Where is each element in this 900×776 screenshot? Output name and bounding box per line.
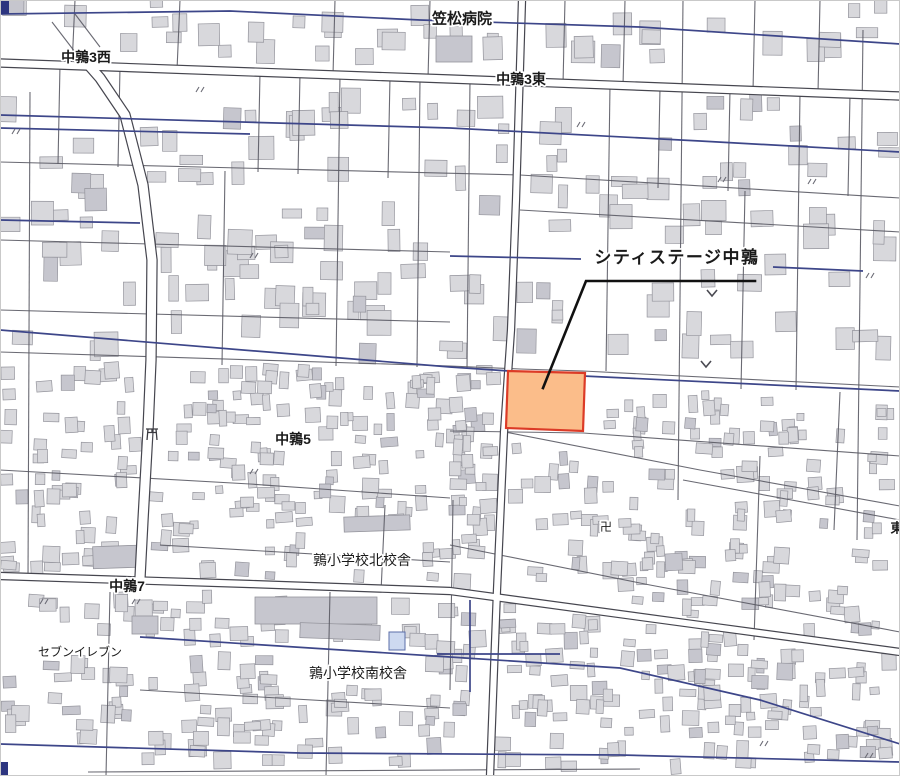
building	[80, 729, 97, 745]
building	[62, 449, 77, 458]
building	[365, 689, 382, 701]
building	[546, 648, 564, 663]
building	[479, 195, 500, 215]
building	[852, 330, 878, 342]
building	[84, 604, 99, 619]
building-large	[132, 616, 158, 634]
building	[279, 372, 289, 389]
building	[550, 624, 565, 635]
building	[820, 518, 829, 528]
building	[469, 275, 481, 294]
label-kasamatsu-hospital: 笠松病院	[431, 9, 492, 27]
building	[694, 113, 707, 130]
building	[689, 649, 703, 663]
building	[670, 759, 681, 775]
building	[657, 562, 665, 577]
building	[686, 312, 701, 336]
building	[829, 272, 850, 287]
building	[219, 369, 229, 383]
building	[353, 416, 368, 430]
building	[218, 652, 231, 670]
building	[625, 727, 634, 735]
building	[728, 664, 743, 677]
building	[608, 334, 628, 354]
building	[190, 745, 206, 757]
building	[428, 103, 438, 119]
building	[569, 461, 578, 473]
building	[526, 654, 542, 666]
building	[163, 131, 177, 152]
building	[244, 721, 261, 730]
building	[660, 716, 670, 733]
building	[76, 719, 93, 730]
building	[863, 510, 875, 522]
building	[761, 397, 773, 406]
building	[476, 482, 486, 490]
building	[48, 692, 62, 703]
building	[852, 684, 860, 701]
label-nakauzura-5: 中鶉5	[275, 431, 311, 447]
building	[198, 24, 220, 46]
building	[215, 618, 229, 628]
building	[848, 4, 859, 18]
building	[117, 402, 125, 415]
building	[621, 651, 635, 667]
building	[184, 629, 196, 645]
building	[553, 514, 569, 526]
building	[774, 584, 786, 601]
building	[864, 528, 873, 539]
building	[305, 407, 321, 422]
building	[341, 88, 360, 113]
building	[877, 132, 897, 145]
building	[738, 180, 750, 196]
building	[61, 375, 74, 390]
building	[160, 617, 174, 631]
building	[180, 155, 203, 164]
building	[701, 632, 709, 648]
building	[650, 49, 665, 63]
building	[178, 169, 200, 182]
building	[149, 731, 164, 745]
building	[760, 421, 774, 432]
building	[205, 245, 226, 266]
temple-manji-icon: 卍	[600, 520, 612, 534]
building	[550, 733, 564, 749]
building	[298, 705, 307, 723]
building	[47, 489, 60, 504]
building	[558, 474, 569, 489]
building	[482, 413, 493, 425]
building	[784, 585, 800, 597]
building	[708, 722, 719, 733]
building	[653, 394, 666, 407]
building	[386, 392, 395, 409]
building	[246, 367, 257, 382]
building	[525, 712, 536, 727]
building	[519, 700, 528, 709]
building	[3, 676, 16, 688]
building	[740, 99, 753, 121]
building	[665, 553, 683, 571]
building	[198, 717, 215, 726]
building	[455, 665, 467, 681]
building	[746, 712, 755, 720]
building	[121, 710, 131, 722]
building	[354, 570, 365, 583]
building	[436, 641, 454, 654]
building	[286, 552, 296, 567]
building	[171, 311, 182, 334]
building	[637, 649, 651, 661]
building	[809, 207, 826, 223]
building	[655, 330, 666, 341]
building	[455, 166, 466, 191]
building	[651, 533, 660, 544]
building	[477, 96, 503, 118]
building	[725, 716, 735, 725]
building	[94, 332, 118, 357]
building	[435, 433, 443, 447]
building	[430, 695, 440, 706]
building	[36, 380, 52, 392]
label-seven-eleven: セブンイレブン	[38, 644, 122, 659]
building	[707, 96, 724, 109]
building	[415, 495, 427, 510]
building	[604, 420, 616, 429]
building	[374, 424, 382, 435]
building	[85, 188, 107, 211]
building	[691, 428, 700, 439]
building	[806, 459, 820, 472]
building	[461, 613, 476, 626]
building	[179, 523, 194, 533]
building	[65, 417, 78, 433]
building	[611, 561, 628, 576]
building	[232, 465, 245, 480]
building	[411, 5, 429, 26]
building	[389, 757, 402, 766]
building	[124, 377, 134, 392]
building	[256, 39, 275, 63]
building	[118, 417, 130, 434]
building	[438, 603, 454, 617]
building	[504, 604, 516, 613]
building	[129, 437, 142, 452]
building	[412, 375, 421, 388]
building	[803, 726, 817, 740]
building	[37, 449, 47, 463]
building	[759, 476, 770, 490]
building-large	[436, 36, 472, 62]
building	[837, 586, 847, 595]
building	[856, 28, 877, 38]
building	[625, 400, 633, 412]
building	[101, 705, 116, 723]
building	[872, 523, 881, 534]
building	[776, 510, 792, 523]
map-canvas: 卍笠松病院中鶉3西中鶉3東中鶉5鶉小学校北校舎中鶉7セブンイレブン鶉小学校南校舎…	[0, 0, 900, 776]
building	[43, 661, 59, 670]
building	[587, 663, 595, 677]
building	[507, 665, 521, 673]
building	[381, 437, 399, 447]
building	[0, 542, 16, 554]
building	[800, 685, 808, 702]
building	[188, 452, 199, 460]
building	[751, 660, 768, 669]
building	[197, 215, 211, 239]
building	[399, 712, 413, 726]
building	[646, 624, 656, 633]
building	[215, 486, 223, 494]
building	[808, 163, 827, 177]
building	[425, 656, 443, 672]
building	[5, 715, 16, 733]
building	[741, 697, 751, 712]
building	[153, 601, 167, 610]
building	[324, 225, 343, 251]
building	[689, 727, 702, 738]
building	[743, 432, 755, 445]
building	[685, 418, 696, 429]
building	[636, 417, 648, 431]
building	[553, 713, 567, 721]
building	[701, 269, 715, 287]
building	[499, 619, 515, 628]
building	[588, 620, 597, 631]
building	[601, 718, 612, 728]
building	[483, 446, 498, 455]
building	[517, 282, 533, 302]
building	[245, 110, 256, 122]
building	[536, 518, 548, 529]
building	[494, 737, 511, 751]
building	[710, 581, 720, 596]
building	[44, 562, 60, 571]
building	[462, 534, 477, 543]
building	[106, 517, 117, 534]
building	[469, 630, 487, 647]
building	[453, 439, 463, 455]
building	[536, 573, 547, 582]
building	[150, 0, 163, 8]
building	[831, 606, 845, 615]
building	[35, 474, 45, 485]
building	[208, 448, 224, 459]
building	[868, 454, 877, 462]
building	[230, 508, 244, 517]
building	[844, 606, 860, 623]
building	[558, 185, 568, 208]
building	[202, 590, 212, 603]
building	[334, 699, 346, 707]
school-pool	[389, 632, 405, 650]
building	[355, 48, 373, 64]
building	[427, 419, 438, 430]
building	[603, 481, 614, 492]
building	[768, 447, 783, 457]
building	[545, 757, 561, 769]
building	[580, 631, 589, 644]
building	[316, 46, 330, 61]
building	[184, 405, 193, 418]
building	[31, 561, 43, 575]
building	[193, 492, 205, 499]
building	[680, 689, 696, 697]
building	[182, 720, 197, 733]
building	[603, 689, 612, 702]
building	[210, 434, 220, 445]
building	[402, 98, 416, 110]
building	[663, 697, 673, 711]
building	[416, 450, 424, 458]
building	[687, 509, 695, 521]
building	[652, 592, 664, 601]
building	[364, 386, 373, 399]
building	[517, 329, 537, 354]
building	[169, 276, 179, 302]
building	[208, 391, 218, 400]
building	[186, 602, 204, 613]
building	[535, 477, 551, 493]
building	[873, 220, 885, 244]
building	[480, 498, 498, 513]
building	[319, 484, 330, 498]
building	[652, 283, 674, 301]
building	[240, 265, 259, 279]
building	[546, 23, 566, 47]
building	[207, 404, 216, 413]
building	[240, 664, 255, 679]
building	[483, 37, 503, 60]
building	[804, 624, 815, 637]
building	[410, 633, 426, 646]
building	[16, 490, 28, 504]
building	[570, 685, 587, 700]
map-edge-mark	[0, 0, 9, 14]
label-higashi-partial: 東	[890, 521, 900, 536]
building	[277, 404, 290, 417]
building	[275, 512, 293, 523]
building	[455, 420, 466, 431]
building	[572, 557, 580, 570]
building	[665, 469, 674, 479]
building	[454, 573, 471, 589]
building	[498, 124, 509, 134]
building	[210, 634, 221, 647]
building	[152, 17, 168, 28]
building	[104, 362, 120, 380]
building	[738, 644, 749, 655]
building	[570, 511, 581, 519]
building	[262, 395, 270, 411]
building	[156, 233, 179, 248]
building	[329, 389, 342, 406]
building	[512, 443, 522, 454]
building	[714, 398, 721, 410]
building	[742, 461, 757, 472]
building	[120, 34, 137, 52]
building	[186, 284, 209, 301]
building	[607, 409, 619, 418]
building	[168, 451, 178, 461]
building	[557, 149, 566, 162]
building	[418, 725, 429, 737]
building	[879, 479, 894, 489]
building	[775, 312, 796, 332]
building	[496, 145, 507, 163]
building	[765, 254, 786, 275]
building	[705, 669, 721, 680]
building	[1, 474, 13, 485]
building	[355, 435, 366, 443]
building	[729, 704, 741, 716]
building	[682, 334, 699, 358]
building	[457, 110, 475, 127]
building	[340, 412, 348, 425]
building	[367, 310, 391, 335]
label-nakauzura-7: 中鶉7	[109, 578, 145, 594]
building	[1, 367, 15, 380]
building	[102, 231, 119, 252]
building	[225, 278, 235, 299]
building	[387, 413, 395, 430]
building	[249, 136, 274, 159]
building	[809, 591, 821, 602]
building	[512, 705, 520, 718]
building	[667, 665, 685, 681]
label-nakauzura-3-east: 中鶉3東	[496, 71, 546, 87]
building	[537, 283, 551, 299]
building	[110, 667, 128, 683]
building	[219, 410, 227, 426]
building	[440, 341, 463, 351]
building	[444, 722, 455, 737]
building	[5, 409, 17, 425]
building	[329, 496, 345, 513]
building	[695, 669, 706, 683]
building	[60, 607, 69, 622]
building	[296, 533, 305, 549]
building	[601, 44, 620, 67]
building	[257, 381, 271, 394]
building	[54, 673, 72, 682]
building	[596, 700, 604, 714]
building	[62, 706, 80, 715]
building	[331, 451, 341, 465]
building	[456, 375, 471, 392]
building	[748, 727, 761, 737]
building	[1, 560, 17, 570]
building	[362, 478, 379, 493]
building	[274, 451, 285, 465]
building	[720, 404, 729, 416]
building	[468, 545, 485, 558]
building	[576, 699, 590, 714]
building	[81, 442, 93, 452]
building	[426, 716, 435, 725]
building	[552, 310, 563, 320]
building	[521, 479, 533, 488]
building	[703, 400, 716, 416]
building	[720, 163, 732, 181]
building	[767, 98, 779, 111]
building	[317, 208, 328, 220]
building	[547, 156, 557, 172]
building	[426, 377, 435, 394]
building	[280, 303, 299, 328]
